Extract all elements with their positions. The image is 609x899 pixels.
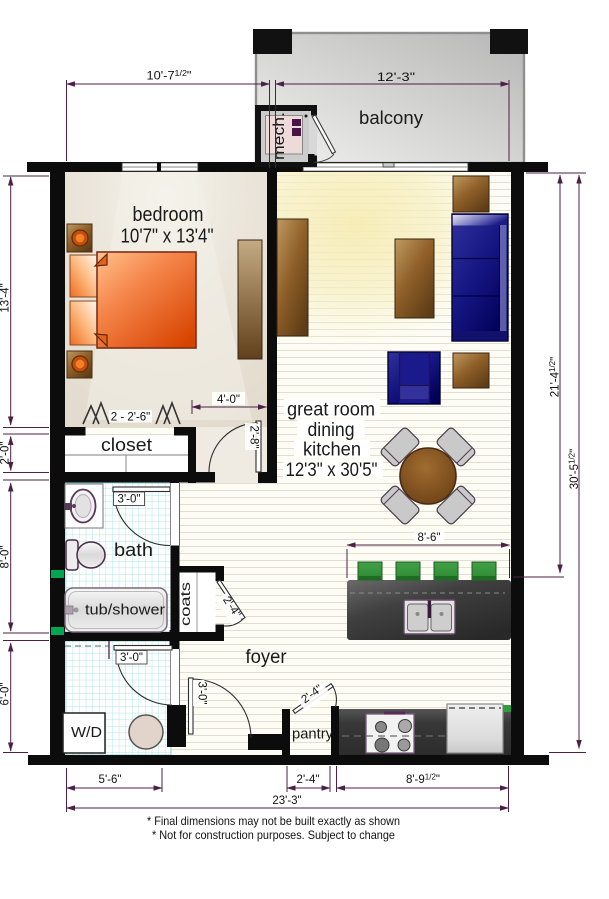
svg-text:3'-0": 3'-0": [120, 652, 143, 664]
svg-text:23'-3": 23'-3": [272, 795, 301, 807]
svg-text:closet: closet: [101, 435, 152, 455]
svg-text:mech.: mech.: [271, 112, 288, 160]
svg-text:* Not for construction purpose: * Not for construction purposes. Subject…: [152, 828, 395, 842]
svg-text:coats: coats: [178, 582, 193, 626]
svg-text:foyer: foyer: [246, 647, 288, 668]
svg-text:tub/shower: tub/shower: [85, 602, 165, 619]
svg-text:4'-0": 4'-0": [217, 394, 240, 406]
svg-text:dining: dining: [308, 420, 355, 441]
svg-text:2'-8": 2'-8": [248, 426, 260, 449]
svg-text:W/D: W/D: [71, 725, 102, 741]
svg-text:* Final dimensions may not be: * Final dimensions may not be built exac…: [147, 814, 400, 828]
svg-text:8'-0": 8'-0": [0, 546, 12, 569]
svg-text:bath: bath: [114, 540, 153, 560]
svg-text:balcony: balcony: [359, 108, 423, 128]
svg-text:12'3" x 30'5": 12'3" x 30'5": [286, 460, 378, 481]
svg-text:kitchen: kitchen: [303, 440, 361, 461]
svg-text:2 - 2'-6": 2 - 2'-6": [111, 412, 151, 424]
svg-text:bedroom: bedroom: [133, 204, 204, 226]
svg-text:13'-4": 13'-4": [0, 283, 12, 312]
svg-text:2'-4": 2'-4": [297, 774, 320, 786]
svg-text:great room: great room: [287, 400, 375, 421]
svg-text:5'-6": 5'-6": [99, 774, 122, 786]
svg-text:pantry: pantry: [292, 726, 333, 743]
svg-text:3'-0": 3'-0": [196, 682, 208, 705]
svg-text:6'-0": 6'-0": [0, 683, 12, 706]
svg-text:3'-0": 3'-0": [118, 494, 141, 506]
svg-text:2'-0": 2'-0": [0, 442, 12, 465]
svg-text:12'-3": 12'-3": [377, 72, 415, 84]
svg-text:10'7" x 13'4": 10'7" x 13'4": [121, 226, 214, 248]
svg-text:8'-6": 8'-6": [418, 532, 441, 544]
